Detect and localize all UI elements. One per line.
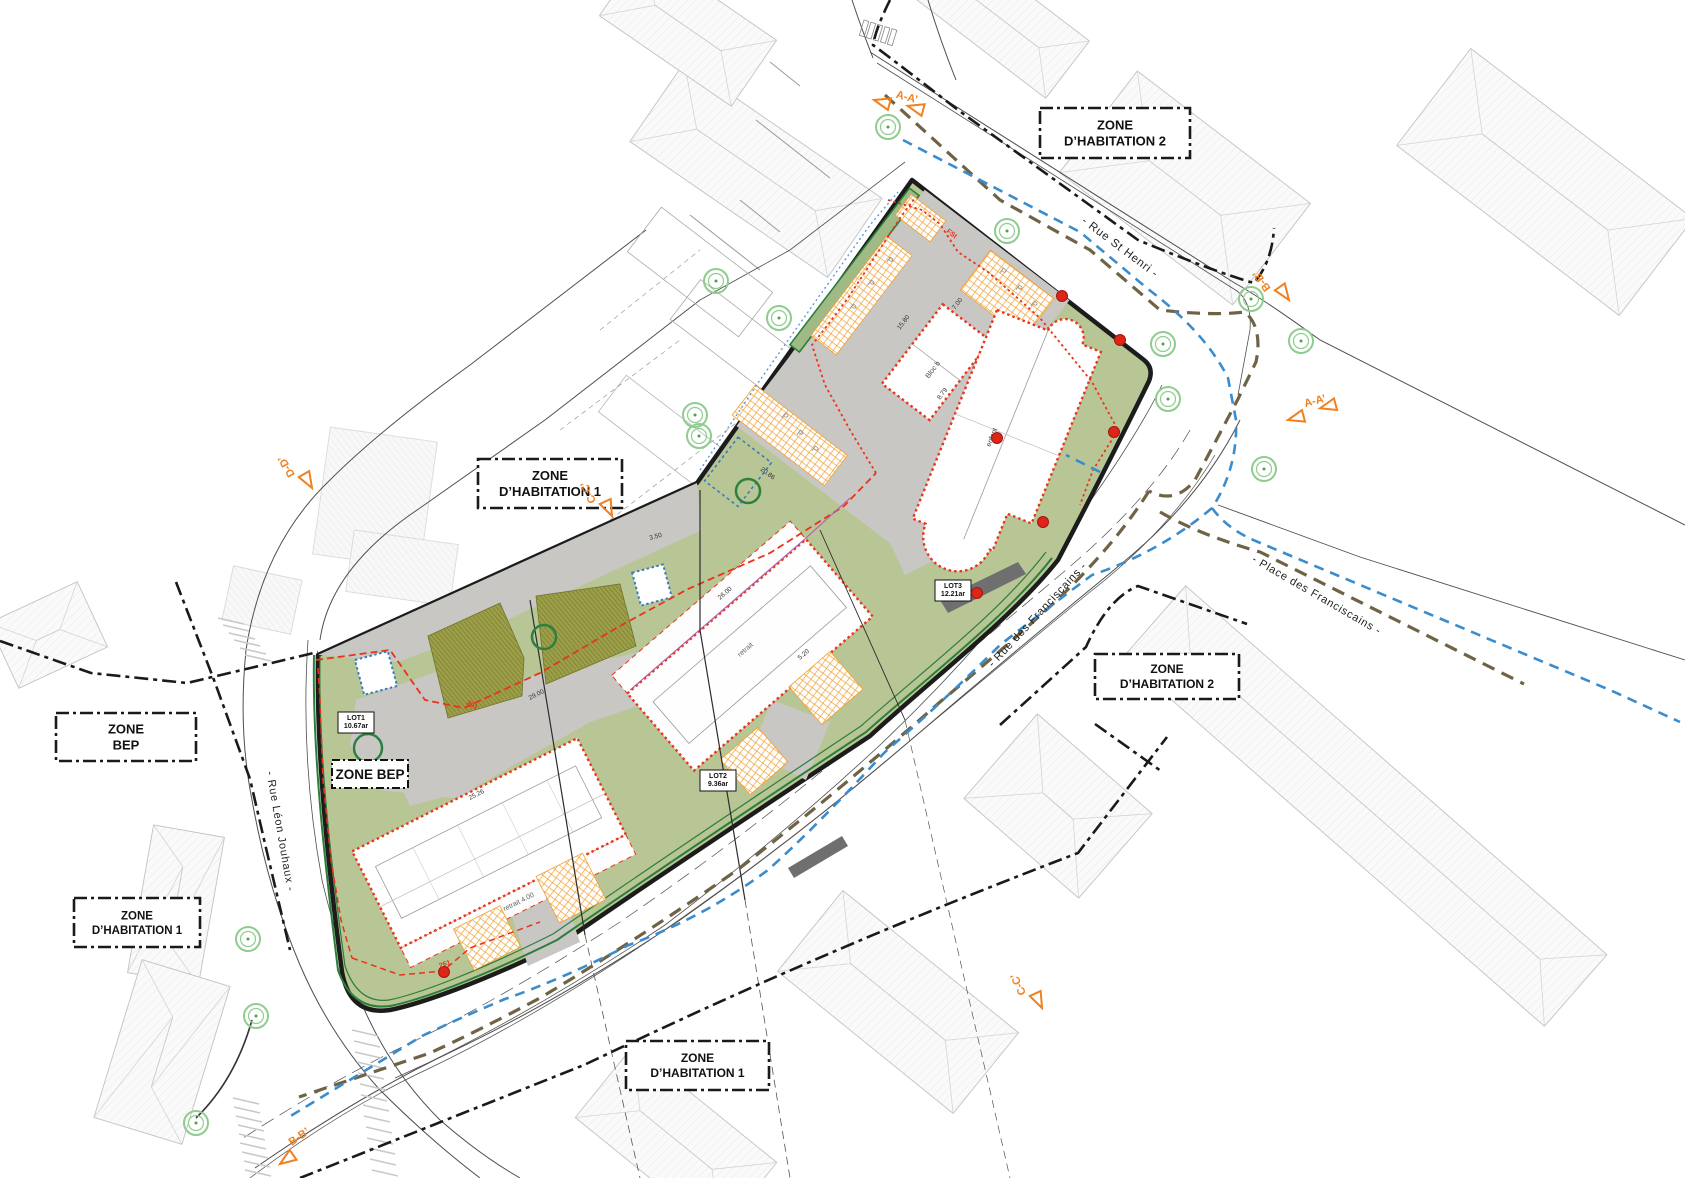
- svg-text:ZONE: ZONE: [108, 722, 144, 737]
- svg-text:LOT2: LOT2: [709, 773, 727, 780]
- svg-text:ZONE BEP: ZONE BEP: [335, 767, 404, 782]
- svg-text:ZONE: ZONE: [1097, 118, 1133, 133]
- svg-text:ZONE: ZONE: [1150, 662, 1183, 676]
- svg-text:LOT1: LOT1: [347, 715, 365, 722]
- svg-text:BEP: BEP: [113, 738, 140, 753]
- svg-text:ZONE: ZONE: [532, 468, 568, 483]
- svg-text:D’HABITATION 1: D’HABITATION 1: [650, 1066, 745, 1080]
- svg-text:ZONE: ZONE: [121, 910, 153, 922]
- svg-text:D’HABITATION 1: D’HABITATION 1: [92, 925, 183, 937]
- svg-text:LOT3: LOT3: [944, 583, 962, 590]
- svg-text:D’HABITATION 2: D’HABITATION 2: [1120, 677, 1215, 691]
- svg-text:ZONE: ZONE: [681, 1051, 714, 1065]
- svg-text:D’HABITATION 2: D’HABITATION 2: [1064, 134, 1166, 149]
- svg-text:9.36ar: 9.36ar: [708, 781, 729, 788]
- svg-text:12.21ar: 12.21ar: [941, 591, 965, 598]
- svg-text:10.67ar: 10.67ar: [344, 723, 368, 730]
